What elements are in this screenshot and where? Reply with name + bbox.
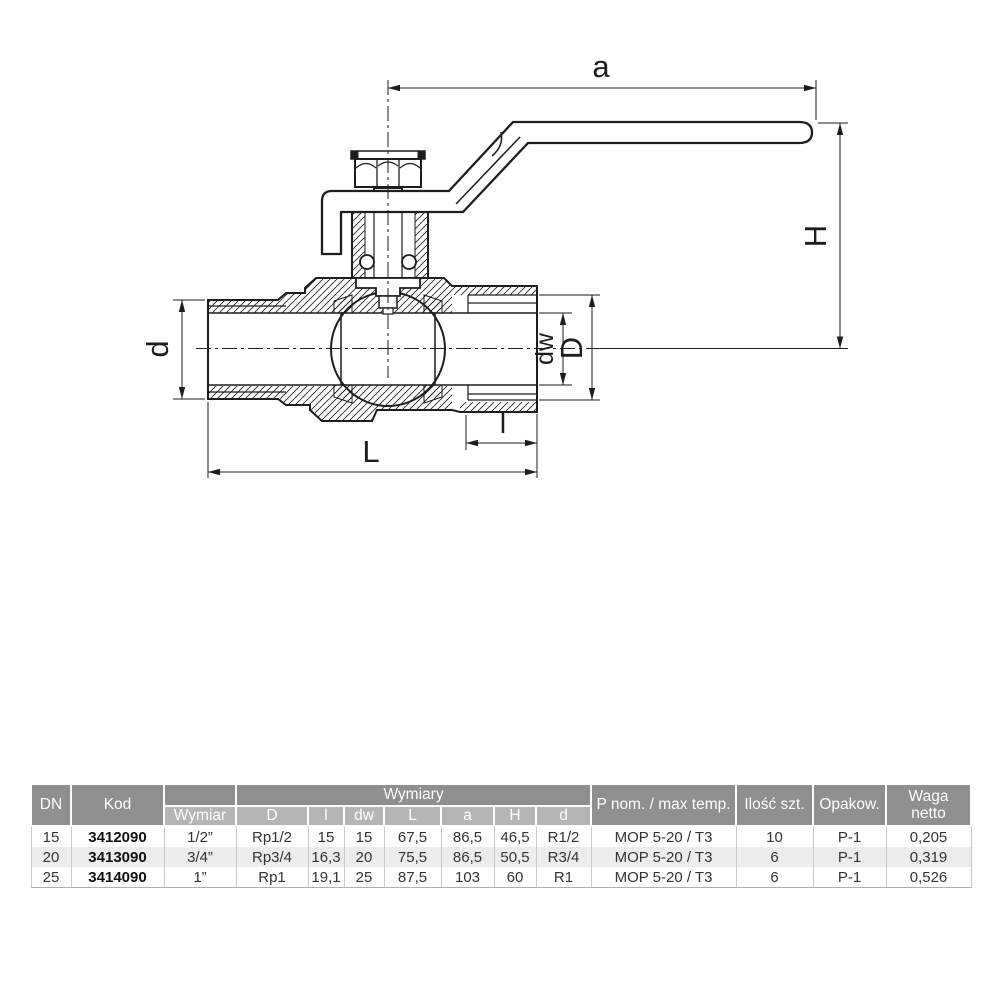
- waga-line-2: netto: [887, 805, 970, 822]
- cell-L: 67,5: [384, 826, 441, 847]
- cell-kod: 3412090: [71, 826, 164, 847]
- col-header-dim-dw: dw: [344, 806, 384, 826]
- cell-d: R3/4: [536, 847, 591, 867]
- col-header-wymiar: Wymiar: [164, 806, 236, 826]
- table-row-dn25: 25 3414090 1” Rp1 19,1 25 87,5 103 60 R1…: [31, 867, 971, 888]
- header-row-1: DN Kod Wymiary P nom. / max temp. Ilość …: [31, 784, 971, 806]
- cell-D: Rp3/4: [236, 847, 308, 867]
- cell-dn: 15: [31, 826, 71, 847]
- cell-a: 103: [441, 867, 494, 888]
- cell-waga: 0,526: [886, 867, 971, 888]
- cell-d: R1: [536, 867, 591, 888]
- cell-pnom: MOP 5-20 / T3: [591, 826, 736, 847]
- valve-technical-drawing: a H d dw D l L: [0, 0, 1000, 760]
- spec-table: DN Kod Wymiary P nom. / max temp. Ilość …: [30, 783, 972, 888]
- dim-label-L: L: [362, 434, 379, 469]
- cell-dw: 15: [344, 826, 384, 847]
- col-header-dim-l: l: [308, 806, 344, 826]
- cell-a: 86,5: [441, 826, 494, 847]
- cell-L: 75,5: [384, 847, 441, 867]
- dim-label-l: l: [500, 408, 506, 440]
- cell-opakow: P-1: [813, 867, 886, 888]
- cell-waga: 0,319: [886, 847, 971, 867]
- cell-opakow: P-1: [813, 847, 886, 867]
- nut-washer-end-right: [418, 151, 425, 159]
- cell-ilosc: 6: [736, 847, 813, 867]
- cell-pnom: MOP 5-20 / T3: [591, 867, 736, 888]
- cell-ilosc: 6: [736, 867, 813, 888]
- col-group-wymiary: Wymiary: [236, 784, 591, 806]
- bonnet-wall-hatch-right: [415, 212, 428, 278]
- cell-a: 86,5: [441, 847, 494, 867]
- dim-label-d: d: [140, 340, 175, 357]
- col-header-dim-d: d: [536, 806, 591, 826]
- col-header-pnom: P nom. / max temp.: [591, 784, 736, 826]
- col-header-dim-L: L: [384, 806, 441, 826]
- cell-D: Rp1/2: [236, 826, 308, 847]
- col-header-dim-D: D: [236, 806, 308, 826]
- cell-dn: 25: [31, 867, 71, 888]
- cell-dn: 20: [31, 847, 71, 867]
- o-ring-right: [402, 255, 416, 269]
- cell-l: 16,3: [308, 847, 344, 867]
- table-row-dn20: 20 3413090 3/4” Rp3/4 16,3 20 75,5 86,5 …: [31, 847, 971, 867]
- cell-H: 50,5: [494, 847, 536, 867]
- waga-line-1: Waga: [887, 788, 970, 805]
- cell-H: 46,5: [494, 826, 536, 847]
- col-header-kod: Kod: [71, 784, 164, 826]
- cell-d: R1/2: [536, 826, 591, 847]
- socket-wall-hatch-bottom: [460, 402, 537, 412]
- cell-l: 19,1: [308, 867, 344, 888]
- table-row-dn15: 15 3412090 1/2” Rp1/2 15 15 67,5 86,5 46…: [31, 826, 971, 847]
- cell-dw: 25: [344, 867, 384, 888]
- cell-l: 15: [308, 826, 344, 847]
- dim-label-D: D: [554, 337, 589, 359]
- cell-wymiar: 1”: [164, 867, 236, 888]
- col-header-ilosc: Ilość szt.: [736, 784, 813, 826]
- cell-dw: 20: [344, 847, 384, 867]
- cell-D: Rp1: [236, 867, 308, 888]
- o-ring-left: [360, 255, 374, 269]
- col-header-dim-H: H: [494, 806, 536, 826]
- cell-waga: 0,205: [886, 826, 971, 847]
- cell-wymiar: 3/4”: [164, 847, 236, 867]
- cell-kod: 3413090: [71, 847, 164, 867]
- col-header-waga: Waga netto: [886, 784, 971, 826]
- dim-label-a: a: [592, 49, 610, 84]
- header-spacer-cell: [164, 784, 236, 806]
- cell-pnom: MOP 5-20 / T3: [591, 847, 736, 867]
- ball-valve-section-drawing: a H d dw D l L: [0, 0, 1000, 760]
- cell-L: 87,5: [384, 867, 441, 888]
- cell-H: 60: [494, 867, 536, 888]
- col-header-dn: DN: [31, 784, 71, 826]
- cell-wymiar: 1/2”: [164, 826, 236, 847]
- dim-label-H: H: [798, 225, 833, 247]
- cell-opakow: P-1: [813, 826, 886, 847]
- col-header-opakow: Opakow.: [813, 784, 886, 826]
- catalog-page: a H d dw D l L DN Kod Wym: [0, 0, 1000, 1000]
- cell-kod: 3414090: [71, 867, 164, 888]
- socket-wall-hatch-top: [452, 286, 537, 295]
- col-header-dim-a: a: [441, 806, 494, 826]
- nut-washer-end-left: [351, 151, 358, 159]
- cell-ilosc: 10: [736, 826, 813, 847]
- handle-inner-edge: [456, 137, 520, 204]
- spec-table-section: DN Kod Wymiary P nom. / max temp. Ilość …: [30, 783, 970, 888]
